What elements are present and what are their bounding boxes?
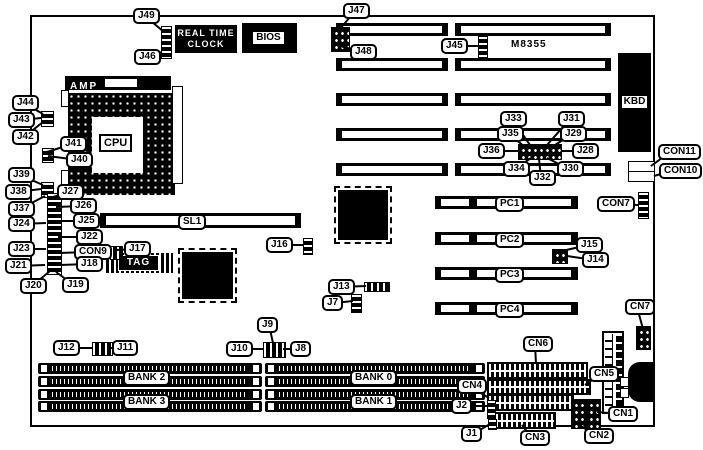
label-j39: J39 xyxy=(8,167,35,183)
label-j20: J20 xyxy=(20,278,47,294)
label-j40: J40 xyxy=(66,152,93,168)
label-con11: CON11 xyxy=(658,144,701,160)
label-j24: J24 xyxy=(8,216,35,232)
label-j31: J31 xyxy=(558,111,585,127)
label-j19: J19 xyxy=(62,277,89,293)
label-cn6: CN6 xyxy=(523,336,553,352)
label-cn2: CN2 xyxy=(584,428,614,444)
label-j49: J49 xyxy=(133,8,160,24)
label-cn5: CN5 xyxy=(589,366,619,382)
label-bank-0: BANK 0 xyxy=(350,370,397,386)
label-j43: J43 xyxy=(8,112,35,128)
label-j2: J2 xyxy=(451,398,472,414)
label-j15: J15 xyxy=(576,237,603,253)
label-con7: CON7 xyxy=(597,196,635,212)
label-j35: J35 xyxy=(497,126,524,142)
label-j44: J44 xyxy=(12,95,39,111)
label-pc4: PC4 xyxy=(495,302,524,318)
label-j30: J30 xyxy=(557,161,584,177)
label-j14: J14 xyxy=(582,252,609,268)
label-j34: J34 xyxy=(503,161,530,177)
label-j37: J37 xyxy=(8,201,35,217)
label-j11: J11 xyxy=(112,340,138,356)
label-bank-3: BANK 3 xyxy=(123,394,170,410)
label-j28: J28 xyxy=(572,143,599,159)
label-sl1: SL1 xyxy=(178,214,206,230)
label-bank-1: BANK 1 xyxy=(350,394,397,410)
label-j12: J12 xyxy=(53,340,80,356)
label-j8: J8 xyxy=(290,341,311,357)
label-pc3: PC3 xyxy=(495,267,524,283)
label-j46: J46 xyxy=(134,49,161,65)
label-j38: J38 xyxy=(5,184,32,200)
label-j9: J9 xyxy=(257,317,278,333)
label-cn1: CN1 xyxy=(608,406,638,422)
label-pc2: PC2 xyxy=(495,232,524,248)
label-j21: J21 xyxy=(5,258,32,274)
label-j48: J48 xyxy=(350,44,377,60)
label-con10: CON10 xyxy=(659,163,702,179)
label-bank-2: BANK 2 xyxy=(123,370,170,386)
label-j17: J17 xyxy=(124,241,151,257)
label-cn4: CN4 xyxy=(457,378,487,394)
label-j26: J26 xyxy=(70,198,97,214)
label-j36: J36 xyxy=(478,143,505,159)
label-j42: J42 xyxy=(12,129,39,145)
label-j33: J33 xyxy=(500,111,527,127)
label-pc1: PC1 xyxy=(495,196,524,212)
label-j7: J7 xyxy=(322,295,343,311)
label-cn3: CN3 xyxy=(520,430,550,446)
label-j25: J25 xyxy=(73,213,100,229)
label-j1: J1 xyxy=(461,426,482,442)
label-layer: J49J46J47J48J45CON11CON10CON7J44J43J42J4… xyxy=(0,0,703,450)
label-j29: J29 xyxy=(560,126,587,142)
label-j22: J22 xyxy=(76,229,103,245)
label-j13: J13 xyxy=(328,279,355,295)
label-j23: J23 xyxy=(8,241,35,257)
label-j45: J45 xyxy=(441,38,468,54)
label-cn7: CN7 xyxy=(625,299,655,315)
label-j41: J41 xyxy=(60,136,87,152)
label-j47: J47 xyxy=(343,3,370,19)
label-j18: J18 xyxy=(76,256,103,272)
label-j10: J10 xyxy=(226,341,253,357)
label-j32: J32 xyxy=(529,170,556,186)
label-j16: J16 xyxy=(266,237,293,253)
motherboard-diagram: REAL TIME CLOCK BIOS AMP CPU KBD TAG M83… xyxy=(0,0,703,450)
